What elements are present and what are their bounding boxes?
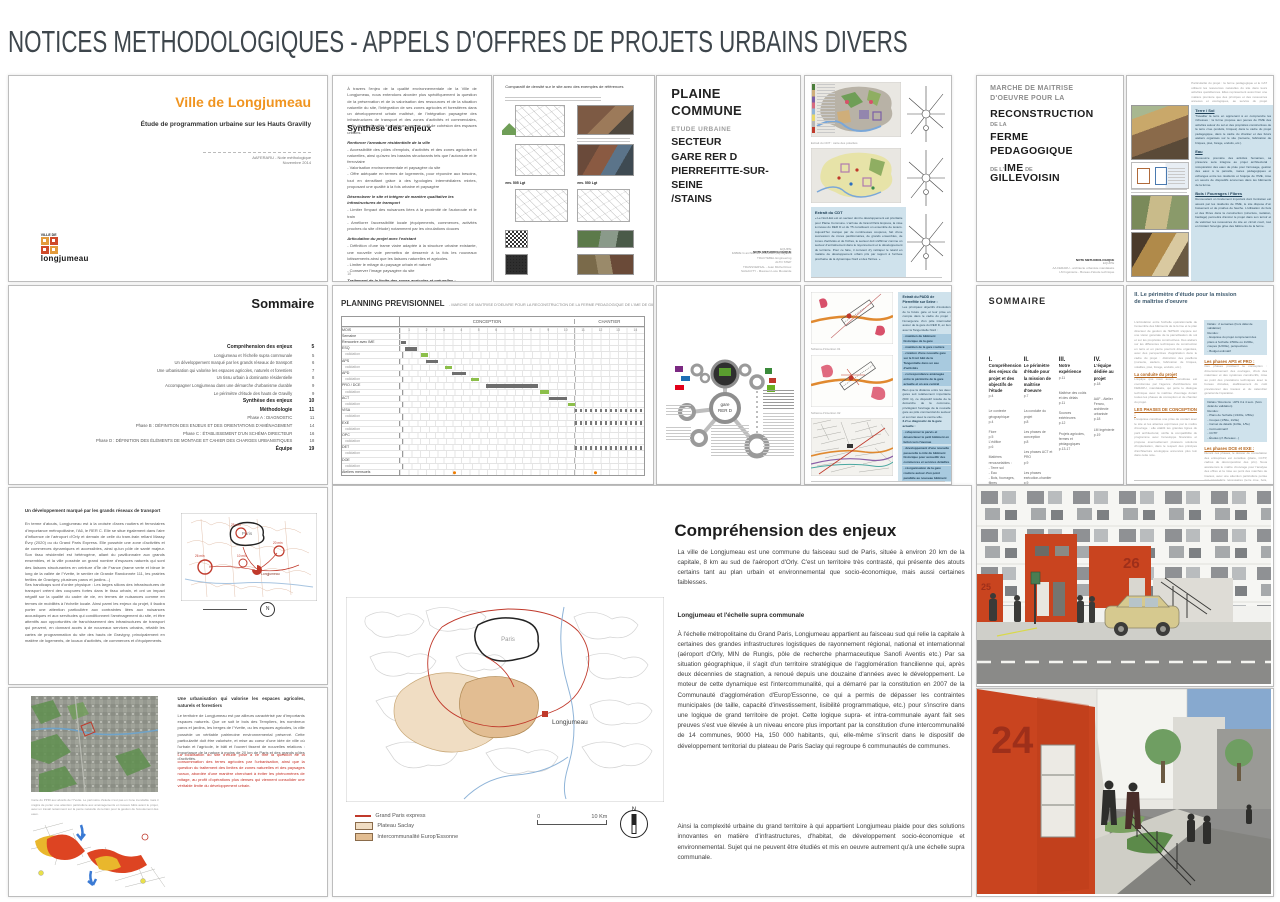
toc-label: Phase D : DÉFINITION DES ÉLÉMENTS DE MON… bbox=[96, 438, 292, 443]
legend-label: Grand Paris express bbox=[375, 813, 425, 819]
section-items: - Accessibilité des pôles d'emplois, d'a… bbox=[347, 147, 477, 190]
section-heading: Désenclaver le site et intégrer de maniè… bbox=[347, 194, 477, 206]
resource-body: Renouvelant un fondement important dont … bbox=[1195, 197, 1271, 229]
construction-diagram bbox=[1131, 162, 1188, 189]
toc-row: Accompagner Longjumeau dans une démarche… bbox=[34, 383, 314, 388]
rendering-street-view: 26 25 bbox=[976, 485, 1274, 687]
footer-bars bbox=[1134, 478, 1222, 481]
map-label-paris: Paris bbox=[242, 531, 253, 536]
padd-sub2: 2.2 Le diagnostic de la gare actuelle : bbox=[902, 419, 950, 428]
urbanisation-para-red: La localisation du site d'étude pose à c… bbox=[178, 752, 305, 789]
ferme-sommaire-title: SOMMAIRE bbox=[989, 296, 1047, 306]
toc-label: Compréhension des enjeux bbox=[227, 344, 292, 350]
title-de-la: DE LA bbox=[990, 122, 1007, 128]
map-legend: Grand Paris express Plateau Saclay Inter… bbox=[355, 810, 458, 844]
study-title: SECTEUR GARE RER D PIERREFITTE-SUR- SEIN… bbox=[671, 135, 793, 206]
transport-para-1: En terme d'atouts, Longjumeau est à la c… bbox=[25, 521, 165, 583]
section-heading: Traitement de la limite des zones agrico… bbox=[347, 278, 477, 282]
toc-row: Méthodologie 11 bbox=[34, 407, 314, 413]
note-line-2: Novembre 2014 bbox=[203, 160, 311, 165]
building-number-25: 25 bbox=[981, 582, 991, 592]
toc-label: Équipe bbox=[276, 446, 293, 452]
col-page: p.7 bbox=[1024, 394, 1053, 399]
padd-map2-caption: Schéma d'intention 02 bbox=[811, 411, 841, 416]
market-kicker: MARCHE DE MAITRISE D'OEUVRE POUR LA bbox=[990, 84, 1073, 103]
toc-col-4: IV. L'équipe dédiée au projet p.18 AAF -… bbox=[1094, 357, 1119, 438]
scale-max: 10 Km bbox=[591, 814, 607, 820]
phase-chantier: CHANTIER bbox=[575, 319, 644, 324]
scale-bar bbox=[537, 820, 607, 825]
doc-plaine-commune-cover: PLAINE COMMUNE ETUDE URBAINE SECTEUR GAR… bbox=[656, 75, 801, 282]
toc-row: Équipe 19 bbox=[34, 446, 314, 452]
time-label-2: 26 min bbox=[195, 554, 205, 558]
site-label: Longjumeau bbox=[261, 572, 280, 576]
planning-title: PLANNING PREVISIONNEL bbox=[341, 299, 445, 308]
doc-cdt-maps: Extrait du CDT : carte des polarités Ext… bbox=[804, 75, 952, 282]
toc-col-2: II. Le périmètre d'étude pour la mission… bbox=[1024, 357, 1053, 485]
section-heading: Articulation du projet avec l'existant bbox=[347, 236, 477, 242]
compass-needle bbox=[632, 814, 637, 834]
synthese-sections: Renforcer l'armature résidentielle de la… bbox=[347, 140, 477, 282]
toc-page: 8 bbox=[292, 375, 314, 380]
padd-bullet: - création d'une nouvelle gare sur le fr… bbox=[902, 351, 950, 370]
toc-page: 5 bbox=[292, 353, 314, 358]
col-title: Compréhension des enjeux du projet et de… bbox=[989, 363, 1018, 394]
toc-row: Un développement marqué par les grands r… bbox=[34, 360, 314, 365]
study-tag: ETUDE URBAINE bbox=[671, 126, 731, 133]
planning-subtitle: - MARCHE DE MAITRISE D'OEUVRE POUR LA RE… bbox=[449, 303, 654, 307]
toc-label: Un tissu urbain à dominante résidentiell… bbox=[217, 375, 293, 380]
resource-body: Ressource première des activités humaine… bbox=[1195, 156, 1271, 188]
caption-bars bbox=[577, 138, 630, 142]
padd-bullets-2: - refaçonner le parvis et désenclaver le… bbox=[902, 430, 950, 482]
perimetre-title: II. Le périmètre d'étude pour la mission… bbox=[1134, 292, 1236, 306]
padd-bullet: - maintien du bâtiment historique de la … bbox=[902, 334, 950, 344]
logo-mosaic-icon bbox=[41, 237, 89, 254]
sommaire-title: Sommaire bbox=[251, 296, 314, 311]
padd-scheme-1 bbox=[811, 292, 893, 344]
doc-planning: PLANNING PREVISIONNEL - MARCHE DE MAITRI… bbox=[332, 285, 654, 485]
gantt-rows: MOIS1234567891011121314SemaineRencontre … bbox=[342, 327, 644, 475]
doc-title: Ville de Longjumeau bbox=[89, 94, 312, 110]
density-pattern-2 bbox=[505, 254, 528, 274]
map-legend-chips bbox=[812, 84, 815, 133]
entrance-rendering-drawing: 24 bbox=[977, 689, 1271, 894]
density-map-3 bbox=[515, 189, 568, 222]
col1-p1: L'articulation entre l'échelle opération… bbox=[1134, 320, 1197, 370]
doc-perimetre: II. Le périmètre d'étude pour la mission… bbox=[1126, 285, 1274, 485]
map-scale-bar bbox=[203, 606, 248, 610]
title-gillevoisin: GILLEVOISIN bbox=[990, 171, 1060, 187]
toc-row: Phase A : DIAGNOSTIC 11 bbox=[34, 415, 314, 420]
col-subs: Le contexte géographique p.4 Flore p.5 L… bbox=[989, 409, 1018, 485]
toc-label: Accompagner Longjumeau dans une démarche… bbox=[165, 383, 292, 388]
time-label-3: 10 min bbox=[237, 554, 247, 558]
travel-time-map: Paris 25 min 26 min 10 min 20 min Longju… bbox=[181, 513, 317, 601]
legend-line-swatch bbox=[355, 815, 371, 817]
ppri-caption: Carte du PPRI aux abords de l'Yvette. Le… bbox=[31, 798, 158, 816]
col-page: p.4 bbox=[989, 394, 1018, 399]
toc-row: Une urbanisation qui valorise les espace… bbox=[34, 368, 314, 373]
client-line-1: PLAINE bbox=[671, 86, 720, 102]
col-title: L'équipe dédiée au projet bbox=[1094, 363, 1119, 382]
toc-row: Longjumeau et l'échelle supra communale … bbox=[34, 353, 314, 358]
toc-row: Synthèse des enjeux 10 bbox=[34, 398, 314, 404]
density-map-4 bbox=[577, 189, 630, 222]
reference-photo-2 bbox=[577, 144, 633, 177]
legend-label: Plateau Saclay bbox=[377, 823, 414, 829]
delais-box-2: Délais / Réunions : APS 3 à 4 sem. (hors… bbox=[1204, 398, 1267, 443]
padd-bullet: - correspondance aménagée entre le périm… bbox=[902, 372, 950, 386]
doc-comprehension: Compréhension des enjeux La ville de Lon… bbox=[332, 485, 972, 897]
doc-subtitle: Étude de programmation urbaine sur les H… bbox=[89, 121, 312, 128]
doc-urbanisation: Carte du PPRI aux abords de l'Yvette. Le… bbox=[8, 687, 328, 897]
delais-box-1: Délais : 2 semaines (hors délai de valid… bbox=[1204, 320, 1267, 356]
section-items: - Définition d'une trame viaire adaptée … bbox=[347, 243, 477, 274]
map-scale: 0 10 Km bbox=[537, 814, 607, 825]
toc-page: 9 bbox=[292, 391, 314, 396]
test1-caption: env. 505 Lgt bbox=[505, 181, 525, 186]
padd-bullet: - refaçonner le parvis et désenclaver le… bbox=[902, 430, 950, 444]
map-label-site: Longjumeau bbox=[552, 719, 588, 726]
col2-p1: Ces phases précisent la conception : dim… bbox=[1204, 364, 1267, 396]
toc-col-1: I. Compréhension des enjeux du projet et… bbox=[989, 357, 1018, 485]
street-rendering-drawing: 26 25 bbox=[977, 486, 1271, 684]
toc-page: 11 bbox=[292, 415, 314, 420]
network-sketches bbox=[905, 84, 947, 274]
transport-heading: Un développement marqué par les grands r… bbox=[25, 508, 165, 515]
comprehension-para-2: À l'échelle métropolitaine du Grand Pari… bbox=[678, 630, 965, 752]
legend-item-gpe: Grand Paris express bbox=[355, 813, 458, 819]
padd-box-p1: Les principaux objectifs d'évolution de … bbox=[902, 305, 950, 332]
toc-page: 9 bbox=[292, 383, 314, 388]
page-number: 10 bbox=[347, 272, 351, 277]
city-logo: VILLE DE longjumeau bbox=[41, 233, 89, 263]
team-text-bars bbox=[763, 389, 794, 409]
aerial-photo bbox=[31, 696, 158, 792]
toc-page: 16 bbox=[292, 431, 314, 436]
resources-box: Terre / Sol Travailler la terre en appre… bbox=[1191, 105, 1274, 281]
toc-label: Phase B : DÉFINITION DES ENJEUX ET DES O… bbox=[136, 423, 292, 428]
reference-photo-1 bbox=[577, 105, 633, 136]
title-reconstruction: RECONSTRUCTION bbox=[990, 107, 1093, 123]
toc-page: 7 bbox=[292, 368, 314, 373]
toc-row: Le périmètre d'étude des hauts de Gravil… bbox=[34, 391, 314, 396]
toc-row: Phase C : ÉTABLISSEMENT D'UN SCHÉMA DIRE… bbox=[34, 431, 314, 436]
col1-p3: L'esquisse constitue une prise de contac… bbox=[1134, 417, 1197, 458]
doc-ferme-cover: MARCHE DE MAITRISE D'OEUVRE POUR LA RECO… bbox=[976, 75, 1124, 282]
caption-bars bbox=[1131, 189, 1186, 193]
density-pattern-1 bbox=[505, 230, 528, 248]
padd-box-p2: Bien que la distance entre les deux gare… bbox=[902, 388, 950, 420]
col-subs: AAF - Atelier Feraru, architecte urbanis… bbox=[1094, 397, 1119, 438]
cdt-map1-caption: Extrait du CDT : carte des polarités bbox=[811, 141, 858, 146]
doc-ferme-sommaire: SOMMAIRE I. Compréhension des enjeux du … bbox=[976, 285, 1124, 485]
section-items: - Limiter l'impact des nuisances liées à… bbox=[347, 207, 477, 232]
comprehension-para-3: Ainsi la complexité urbaine du grand ter… bbox=[678, 822, 965, 863]
toc-page: 5 bbox=[292, 344, 314, 350]
center-node-line1: gare bbox=[720, 402, 730, 407]
planning-header: PLANNING PREVISIONNEL - MARCHE DE MAITRI… bbox=[341, 293, 645, 311]
test2-caption: env. 550 Lgt bbox=[577, 181, 597, 186]
team-text-bars bbox=[666, 427, 692, 441]
toc-label: Phase C : ÉTABLISSEMENT D'UN SCHÉMA DIRE… bbox=[183, 431, 292, 436]
building-number-26: 26 bbox=[1123, 555, 1140, 572]
doc-equipe-diagram: gare RER D bbox=[656, 285, 801, 485]
col-subs: Maîtrise des coûts et des délais p.11 So… bbox=[1059, 391, 1088, 452]
doc-ferme-resources: Particularité du projet : la ferme pédag… bbox=[1126, 75, 1274, 282]
toc-row: Un tissu urbain à dominante résidentiell… bbox=[34, 375, 314, 380]
legend-fill-swatch bbox=[355, 833, 373, 841]
photo-beehive bbox=[1131, 232, 1188, 277]
col-title: Le périmètre d'étude pour la mission de … bbox=[1024, 363, 1053, 394]
comprehension-title: Compréhension des enjeux bbox=[674, 521, 896, 541]
compass-rose-icon: N bbox=[620, 810, 648, 838]
toc-label: Synthèse des enjeux bbox=[243, 398, 292, 404]
comprehension-intro: La ville de Longjumeau est une commune d… bbox=[678, 548, 965, 589]
team-text-bars bbox=[711, 425, 748, 457]
doc-note: AAFERARU - Note méthologique Novembre 20… bbox=[203, 152, 311, 165]
perimetre-col-1: L'articulation entre l'échelle opération… bbox=[1134, 320, 1197, 458]
toc-page: 11 bbox=[292, 407, 314, 413]
gantt-chart: CONCEPTION CHANTIER MOIS1234567891011121… bbox=[341, 316, 645, 476]
legend-item-saclay: Plateau Saclay bbox=[355, 822, 458, 830]
col-page: p.11 bbox=[1059, 376, 1088, 381]
footer-bars bbox=[811, 479, 945, 482]
toc-label: Longjumeau et l'échelle supra communale bbox=[214, 353, 292, 358]
toc-row: Phase B : DÉFINITION DES ENJEUX ET DES O… bbox=[34, 423, 314, 428]
section-heading: Renforcer l'armature résidentielle de la… bbox=[347, 140, 477, 146]
map-legend-bars bbox=[817, 84, 835, 133]
toc-row: Compréhension des enjeux 5 bbox=[34, 344, 314, 350]
padd-box-title: Extrait du PADD de Pierrefitte sur Seine… bbox=[902, 295, 950, 306]
legend-fill-swatch bbox=[355, 822, 373, 830]
team-text-bars bbox=[666, 403, 692, 415]
col-subs: La conduite du projet p.8 Les phases de … bbox=[1024, 409, 1053, 485]
sommaire-entries: Compréhension des enjeux 5 Longjumeau et… bbox=[34, 341, 314, 454]
toc-page: 14 bbox=[292, 423, 314, 428]
scale-zero: 0 bbox=[537, 814, 540, 820]
col1-p2: L'équipe que nous avons constituée est c… bbox=[1134, 377, 1197, 404]
photo-timber-workshop bbox=[1131, 105, 1188, 160]
comprehension-subhead: Longjumeau et l'échelle supra communale bbox=[678, 611, 805, 621]
team-list: EQUIPE FABRE G architectes urbanistes pa… bbox=[677, 247, 791, 274]
doc-synthese-enjeux: À travers l'enjeu de la qualité environn… bbox=[332, 75, 492, 282]
logo-city-name: longjumeau bbox=[41, 254, 89, 263]
toc-label: Phase A : DIAGNOSTIC bbox=[247, 415, 292, 420]
doc-longjumeau-cover: Ville de Longjumeau Étude de programmati… bbox=[8, 75, 328, 282]
subhead-conception: LES PHASES DE CONCEPTION : bbox=[1134, 407, 1197, 417]
gantt-phase-row: CONCEPTION CHANTIER bbox=[342, 317, 644, 327]
padd-bullet: - développement d'une nouvelle passerell… bbox=[902, 446, 950, 465]
toc-label: Méthodologie bbox=[260, 407, 293, 413]
toc-page: 6 bbox=[292, 360, 314, 365]
toc-label: Une urbanisation qui valorise les espace… bbox=[157, 368, 292, 373]
caption-bars bbox=[505, 97, 601, 101]
reference-photo-3 bbox=[577, 230, 633, 248]
context-street-map bbox=[811, 418, 893, 476]
phase-conception: CONCEPTION bbox=[400, 319, 574, 324]
compass-icon: N bbox=[260, 602, 275, 617]
doc-sommaire: Sommaire Compréhension des enjeux 5 Long… bbox=[8, 285, 328, 485]
portfolio-sheet: NOTICES METHODOLOGIQUES - APPELS D'OFFRE… bbox=[0, 0, 1280, 902]
toc-page: 10 bbox=[292, 398, 314, 404]
doc-padd-maps: Schéma d'intention 01 Schéma d'intention… bbox=[804, 285, 952, 485]
toc-page: 19 bbox=[292, 446, 314, 452]
time-label-4: 20 min bbox=[273, 541, 283, 545]
page-title: NOTICES METHODOLOGIQUES - APPELS D'OFFRE… bbox=[8, 24, 908, 60]
col-page: p.18 bbox=[1094, 382, 1119, 387]
compass-n: N bbox=[632, 807, 636, 813]
perimetre-col-2: Délais : 2 semaines (hors délai de valid… bbox=[1204, 320, 1267, 485]
reference-photo-4 bbox=[577, 254, 633, 274]
toc-label: Le périmètre d'étude des hauts de Gravil… bbox=[214, 391, 293, 396]
entrance-number-24: 24 bbox=[991, 720, 1033, 762]
photo-grasses bbox=[1131, 195, 1188, 230]
urbanisation-heading: Une urbanisation qui valorise les espace… bbox=[178, 696, 305, 710]
center-node-line2: RER D bbox=[718, 408, 733, 413]
transport-para-2: Ses handicaps sont d'ordre physique : Le… bbox=[25, 582, 165, 644]
doc-comparatif-densite: Comparatif de densité sur le site avec d… bbox=[493, 75, 655, 282]
supra-communal-map: Paris Longjumeau bbox=[346, 597, 664, 802]
cdt-extract-box: Extrait du CDT « Le Nord-Est est un sect… bbox=[811, 207, 907, 277]
footer-bars bbox=[811, 275, 942, 278]
padd-scheme-2 bbox=[811, 355, 893, 407]
team-list: EQUIPE AA FERARU - architecte urbaniste … bbox=[997, 261, 1114, 275]
map-label-paris: Paris bbox=[501, 637, 515, 643]
density-map-2 bbox=[515, 144, 565, 177]
cdt-map-2 bbox=[811, 148, 901, 203]
padd-bullet: - maintien de la gare routière bbox=[902, 345, 950, 350]
legend-item-essonne: Intercommunalité Europ'Essonne bbox=[355, 833, 458, 841]
client-line-2: COMMUNE bbox=[671, 103, 742, 119]
padd-map1-caption: Schéma d'intention 01 bbox=[811, 347, 841, 352]
toc-label: Un développement marqué par les grands r… bbox=[174, 360, 292, 365]
toc-page: 18 bbox=[292, 438, 314, 443]
legend-label: Intercommunalité Europ'Essonne bbox=[377, 834, 458, 840]
padd-bullets-1: - maintien du bâtiment historique de la … bbox=[902, 334, 950, 386]
doc-transport: Un développement marqué par les grands r… bbox=[8, 487, 328, 685]
team-text-bars bbox=[763, 413, 794, 457]
padd-extract-box: Extrait du PADD de Pierrefitte sur Seine… bbox=[898, 292, 952, 482]
rendering-entrance-view: 24 bbox=[976, 688, 1274, 897]
ppri-map bbox=[25, 817, 170, 891]
col-title: Notre expérience bbox=[1059, 363, 1088, 375]
toc-row: Phase D : DÉFINITION DES ÉLÉMENTS DE MON… bbox=[34, 438, 314, 443]
box-body: « Le Nord-Est est un secteur dont le dév… bbox=[815, 216, 903, 261]
synthese-title: Synthèse des enjeux bbox=[347, 123, 431, 133]
density-map-1 bbox=[515, 105, 565, 138]
comparatif-title: Comparatif de densité sur le site avec d… bbox=[505, 84, 643, 90]
toc-col-3: III. Notre expérience p.11 Maîtrise des … bbox=[1059, 357, 1088, 452]
time-label-1: 25 min bbox=[231, 523, 241, 527]
resource-body: Travailler la terre en apprenant à en co… bbox=[1195, 114, 1271, 146]
